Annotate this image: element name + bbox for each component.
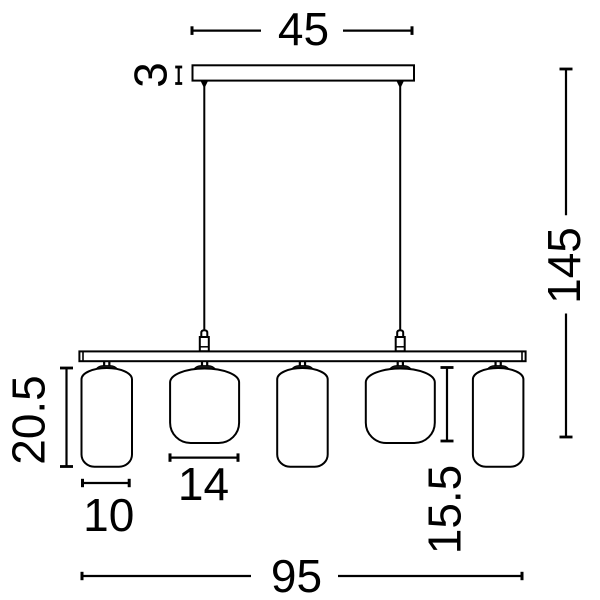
svg-text:145: 145 xyxy=(538,227,590,304)
svg-text:15.5: 15.5 xyxy=(418,465,470,555)
svg-text:95: 95 xyxy=(271,550,322,600)
svg-text:14: 14 xyxy=(178,458,229,510)
svg-text:20.5: 20.5 xyxy=(2,375,54,465)
svg-text:45: 45 xyxy=(278,3,329,55)
svg-text:3: 3 xyxy=(124,62,176,88)
svg-text:10: 10 xyxy=(83,489,134,541)
